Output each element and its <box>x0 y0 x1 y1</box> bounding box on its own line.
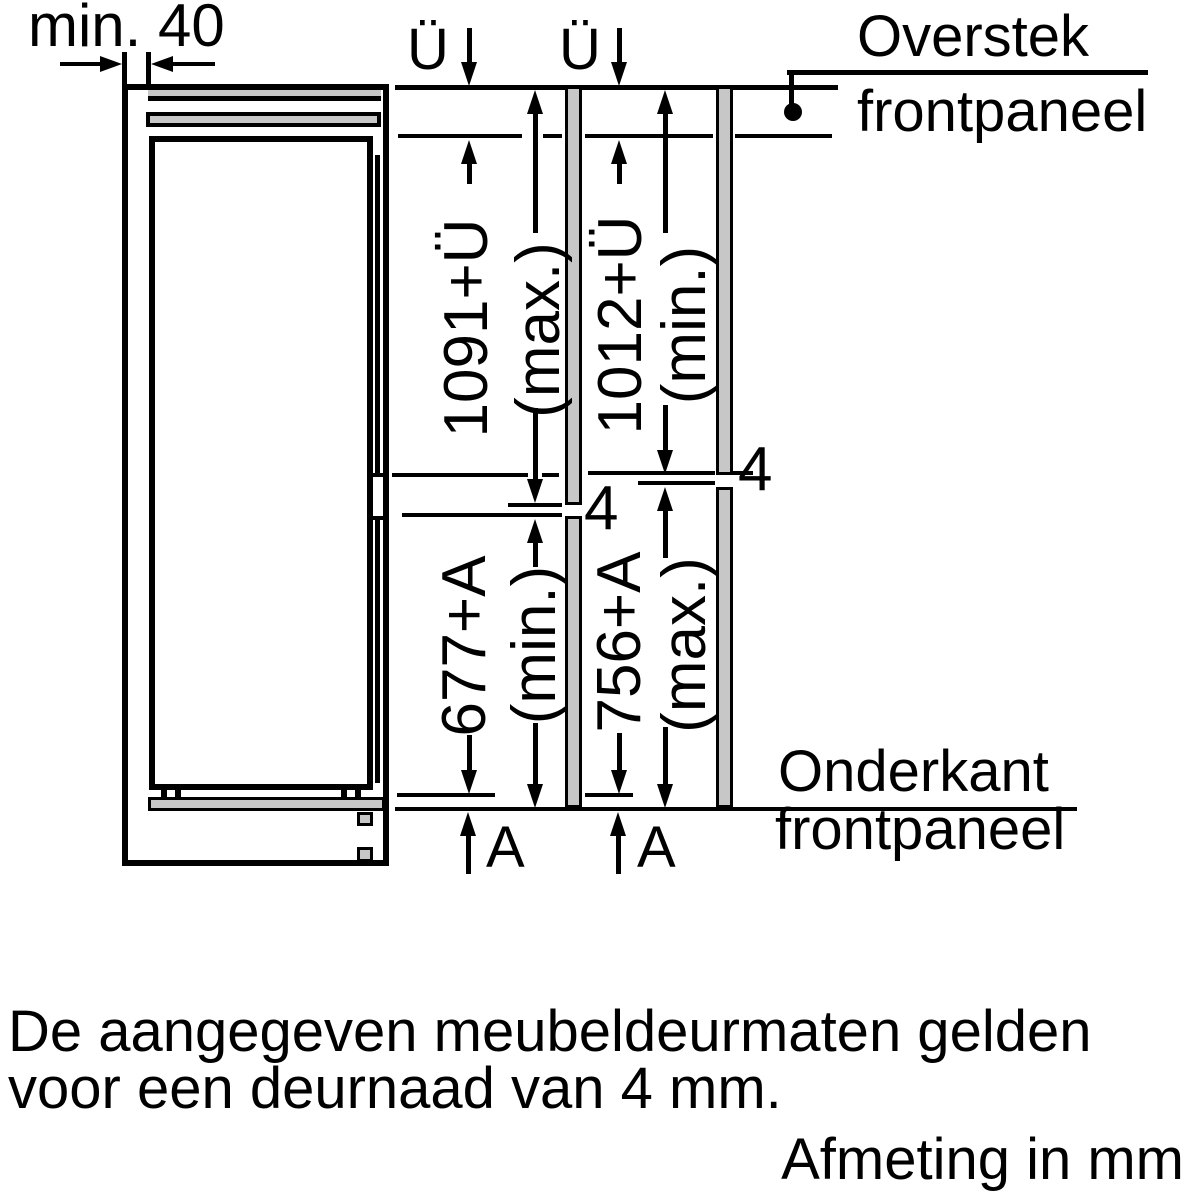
overstek-callout-dot <box>784 103 802 121</box>
u-overhang-label-left: Ü <box>407 20 449 81</box>
note-line-1: De aangegeven meubeldeurmaten gelden <box>8 1002 1091 1063</box>
units-label: Afmeting in mm <box>781 1130 1184 1191</box>
cabinet-left-wall <box>122 84 128 866</box>
plinth-panel <box>148 797 385 811</box>
note-line-2: voor een deurnaad van 4 mm. <box>8 1059 782 1120</box>
dim-upper-min-arrowhead-top <box>657 90 673 114</box>
appliance-door-line-lower <box>375 520 380 783</box>
overstek-callout-underline <box>787 70 1148 75</box>
dim-lower-max-qualifier: (max.) <box>652 445 716 845</box>
u-arrow-shaft <box>617 28 622 64</box>
dim-lower-min-qualifier: (min.) <box>502 445 566 845</box>
min-gap-dimension-label: min. 40 <box>28 0 225 57</box>
onderkant-label-line1: Onderkant <box>778 742 1049 803</box>
dim-lower-min-value: 677+A <box>432 446 496 846</box>
mounting-rail <box>146 112 381 127</box>
dim-lower-max-value: 756+A <box>587 442 651 842</box>
door-split-cap-top <box>370 473 386 477</box>
u-arrowhead-down <box>611 62 627 86</box>
u-arrow-shaft <box>467 28 472 64</box>
installation-diagram: min. 40 4 4 Ü Ü <box>0 0 1192 1200</box>
min-gap-arrow-tail-left <box>60 62 102 66</box>
dim-upper-max-arrowhead-top <box>527 90 543 114</box>
overstek-label-line1: Overstek <box>857 7 1089 68</box>
hinge-cover-lower <box>357 847 373 862</box>
top-panel-underside-line <box>148 96 381 101</box>
appliance-door-line-upper <box>375 155 380 473</box>
hinge-cover-upper <box>357 812 373 826</box>
overstek-callout-line <box>789 73 794 105</box>
cabinet-bottom-line <box>122 860 389 866</box>
appliance-body <box>149 136 373 790</box>
u-arrowhead-down <box>461 62 477 86</box>
u-overhang-label-right: Ü <box>559 20 601 81</box>
onderkant-label-line2: frontpaneel <box>775 800 1065 861</box>
appliance-top-reference-line <box>735 134 832 138</box>
gap-value-label-right: 4 <box>738 437 772 502</box>
overstek-label-line2: frontpaneel <box>857 82 1147 143</box>
min-gap-arrow-tail-right <box>171 62 215 66</box>
